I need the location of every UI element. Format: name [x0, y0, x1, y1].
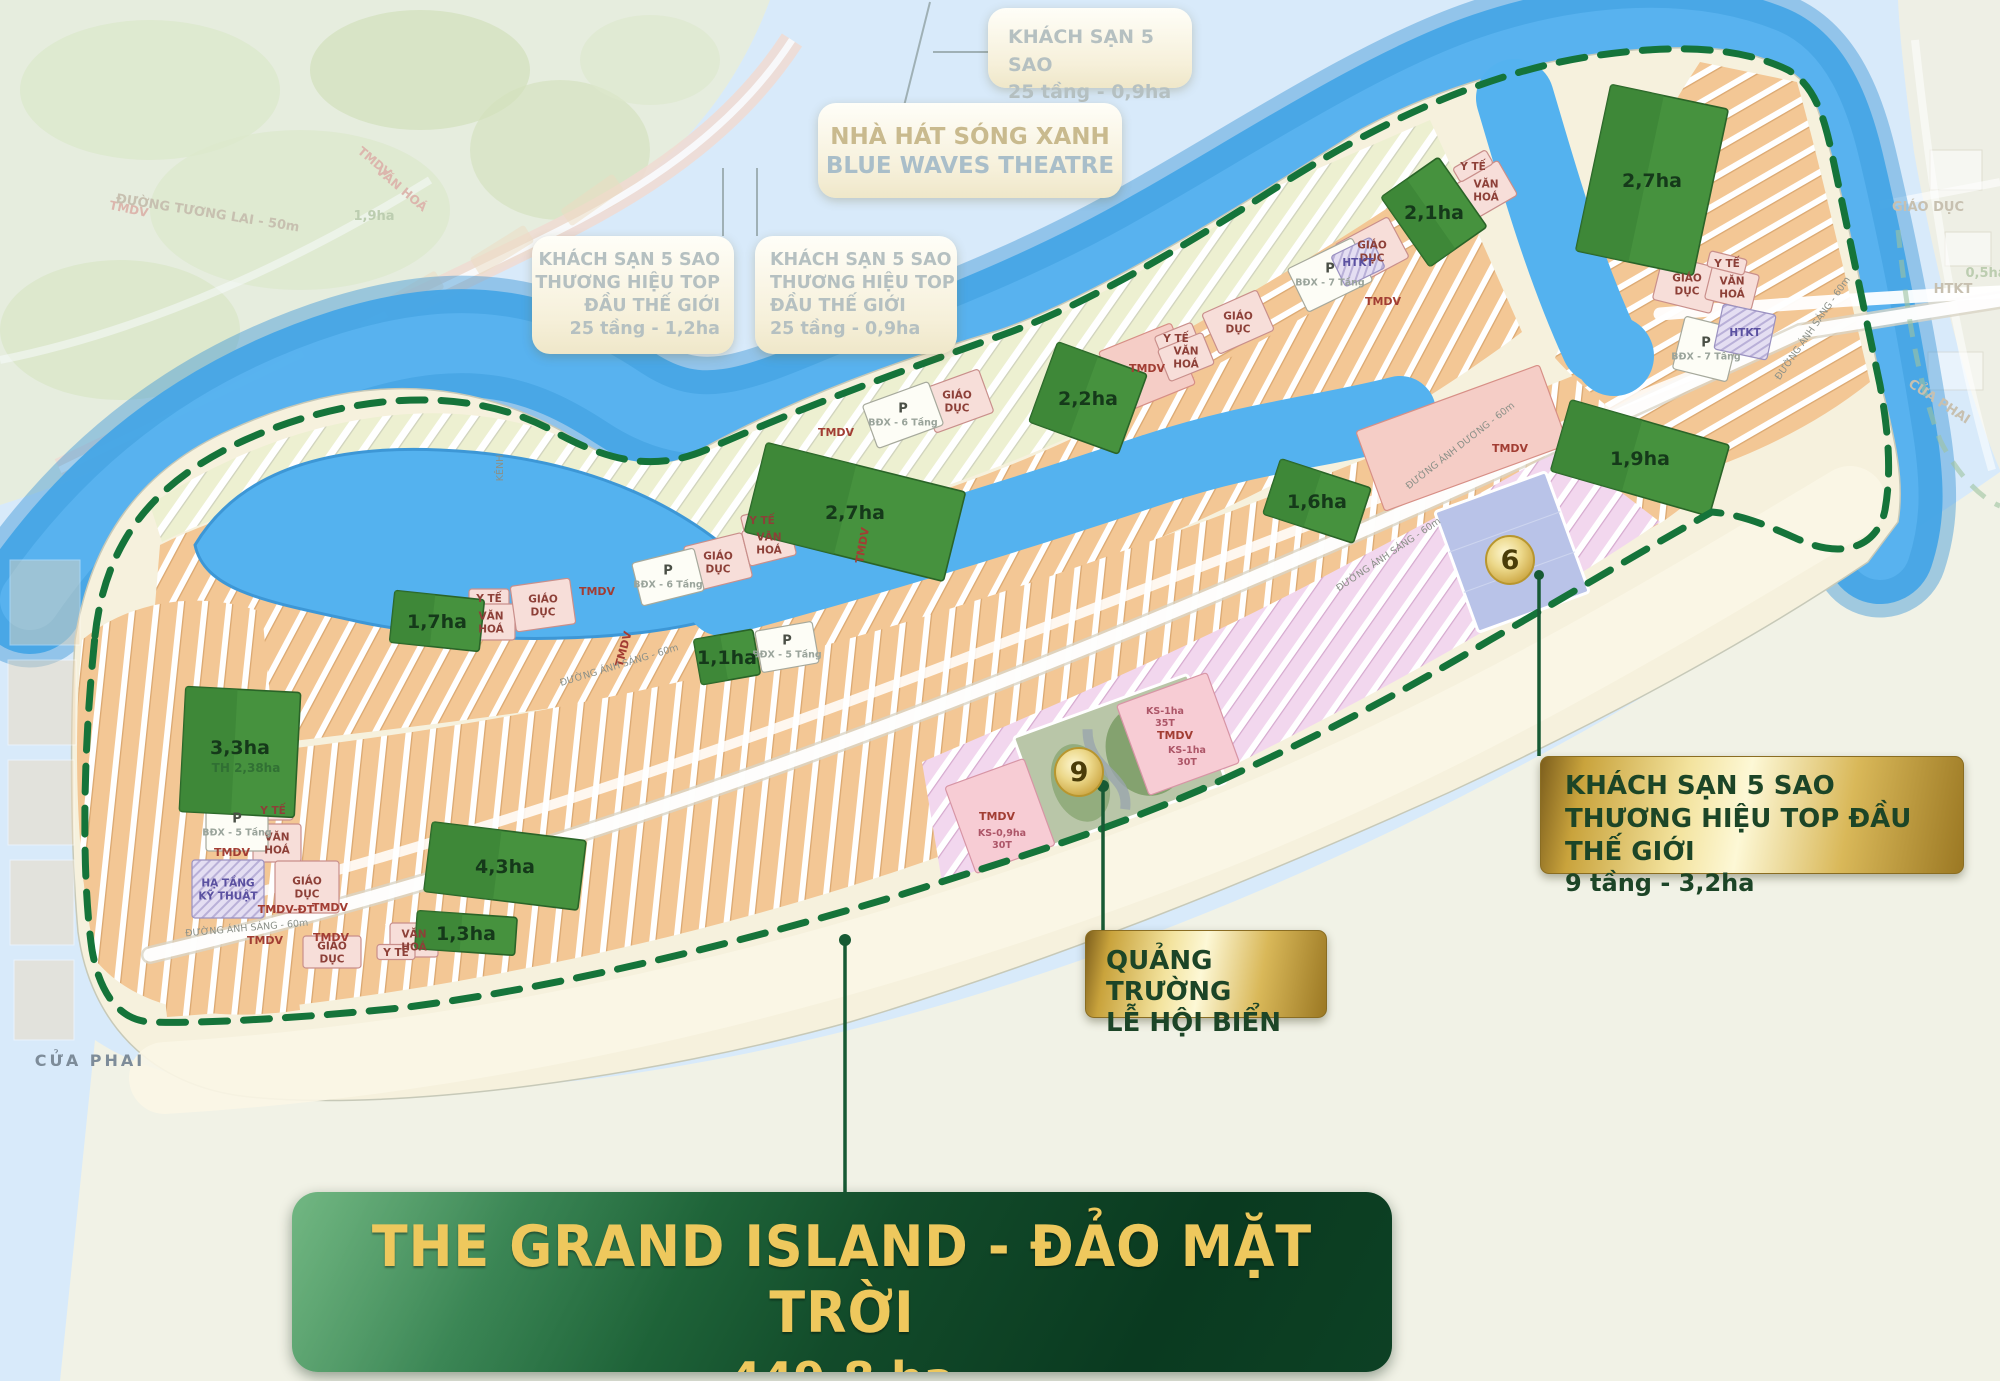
zone-label: TMDV	[1157, 729, 1194, 742]
zone-label: KÊNH	[494, 455, 506, 481]
masterplan-stage: 69 Y TẾVĂNHOÁGIÁODỤCY TẾVĂNHOÁGIÁODỤCGIÁ…	[0, 0, 2000, 1381]
park-area-label: 2,1ha	[1404, 202, 1464, 224]
callout-line: KHÁCH SẠN 5 SAO	[770, 249, 957, 272]
block-label: GIÁO	[703, 550, 733, 563]
park-area-label: 1,3ha	[436, 923, 496, 945]
callout-line: KHÁCH SẠN 5 SAO	[532, 249, 720, 272]
zone-label: TMDV	[1365, 295, 1402, 308]
block-label: DỤC	[320, 954, 345, 966]
block-label: VĂN	[1173, 345, 1198, 358]
zone-label: TMDV	[214, 846, 251, 859]
block-label: DỤC	[1675, 286, 1700, 298]
zone-label: 35T	[1155, 718, 1175, 729]
park-area-label: 2,2ha	[1058, 388, 1118, 410]
block-label: GIÁO	[1672, 272, 1702, 285]
zone-label: KS-0,9ha	[978, 828, 1026, 839]
block-label: P	[1701, 336, 1711, 351]
callout-line: KHÁCH SẠN 5 SAO	[1565, 770, 1963, 803]
block-label: DỤC	[1226, 324, 1251, 336]
block-label: DỤC	[945, 403, 970, 415]
block-label: HOÁ	[1473, 191, 1499, 204]
block-label: BĐX - 6 Tầng	[868, 418, 937, 429]
callout-line: ĐẦU THẾ GIỚI	[532, 295, 720, 318]
block-label: P	[782, 634, 792, 649]
block-label: Y TẾ	[475, 590, 502, 605]
block-label: VĂN	[478, 610, 503, 623]
block-label: KỸ THUẬT	[198, 890, 258, 903]
callout-theatre: NHÀ HÁT SÓNG XANH BLUE WAVES THEATRE	[818, 103, 1122, 198]
block-label: HOÁ	[756, 544, 782, 557]
park-area-label: 4,3ha	[475, 856, 535, 878]
zone-label: TMDV	[1492, 442, 1529, 455]
park-area-label: 1,9ha	[1610, 448, 1670, 470]
block-label: P	[232, 812, 242, 827]
zone-label: 0,5ha	[1965, 266, 2000, 281]
zone-label: TMDV	[579, 585, 616, 598]
block-label: GIÁO	[1357, 239, 1387, 252]
block-label: P	[1325, 262, 1335, 277]
block-label: HTKT	[1342, 257, 1374, 269]
block-label: P	[663, 564, 673, 579]
callout-hotel-left: KHÁCH SẠN 5 SAO THƯƠNG HIỆU TOP ĐẦU THẾ …	[532, 236, 734, 354]
callout-festival-square: QUẢNG TRƯỜNG LỄ HỘI BIỂN	[1085, 930, 1327, 1018]
park-area-label: 1,6ha	[1287, 491, 1347, 513]
block-label: VĂN	[1473, 178, 1498, 191]
callout-line: KHÁCH SẠN 5 SAO	[1008, 24, 1192, 79]
callout-line: LỄ HỘI BIỂN	[1106, 1008, 1326, 1039]
block-label: BĐX - 6 Tầng	[633, 580, 702, 591]
project-title: THE GRAND ISLAND - ĐẢO MẶT TRỜI	[336, 1214, 1348, 1346]
project-area: 449,8 ha	[292, 1352, 1392, 1372]
block-label: VĂN	[1719, 275, 1744, 288]
zone-label: CỬA PHAI	[35, 1049, 146, 1070]
zone-label: GIÁO DỤC	[1892, 199, 1964, 215]
zone-label: KS-1ha	[1146, 706, 1184, 717]
zone-label: TMDV	[313, 931, 350, 944]
block-label: GIÁO	[528, 593, 558, 606]
block-label: HTKT	[1729, 327, 1761, 339]
block-label: GIÁO	[942, 389, 972, 402]
west-ghost-strips	[8, 560, 80, 1040]
block-label: Y TẾ	[1713, 255, 1740, 270]
project-title-banner: THE GRAND ISLAND - ĐẢO MẶT TRỜI 449,8 ha	[292, 1192, 1392, 1372]
zone-label: 30T	[992, 840, 1012, 851]
masterplan-map: 69 Y TẾVĂNHOÁGIÁODỤCY TẾVĂNHOÁGIÁODỤCGIÁ…	[0, 0, 2000, 1381]
theatre-name-vi: NHÀ HÁT SÓNG XANH	[818, 123, 1122, 152]
block-label: DỤC	[295, 889, 320, 901]
park-area-label: 2,7ha	[825, 502, 885, 524]
zone-label: TMDV	[312, 901, 349, 914]
block-label: GIÁO	[1223, 310, 1253, 323]
zone-label: KS-1ha	[1168, 745, 1206, 756]
block-label: P	[898, 402, 908, 417]
callout-line: ĐẦU THẾ GIỚI	[770, 295, 957, 318]
callout-line: 25 tầng - 0,9ha	[770, 318, 957, 341]
zone-label: TMDV	[818, 426, 855, 439]
block-label: DỤC	[531, 607, 556, 619]
park-area-label: 1,7ha	[407, 611, 467, 633]
callout-hotel-center: KHÁCH SẠN 5 SAO THƯƠNG HIỆU TOP ĐẦU THẾ …	[755, 236, 957, 354]
block-label: GIÁO	[292, 875, 322, 888]
marker-number: 9	[1070, 757, 1089, 788]
theatre-name-en: BLUE WAVES THEATRE	[818, 152, 1122, 181]
callout-hotel-right-gold: KHÁCH SẠN 5 SAO THƯƠNG HIỆU TOP ĐẦU THẾ …	[1540, 756, 1964, 874]
block-label: BĐX - 7 Tầng	[1295, 278, 1364, 289]
callout-line: QUẢNG TRƯỜNG	[1106, 946, 1326, 1008]
block-label: BĐX - 7 Tầng	[1671, 352, 1740, 363]
numbered-marker[interactable]: 6	[1486, 536, 1534, 584]
callout-line: 25 tầng - 1,2ha	[532, 318, 720, 341]
block-label: Y TẾ	[1162, 330, 1189, 345]
park-area-label: 2,7ha	[1622, 170, 1682, 192]
marker-number: 6	[1501, 545, 1520, 576]
park-area-label: 3,3ha	[210, 737, 270, 759]
zone-label: 30T	[1177, 757, 1197, 768]
park-area-label: 1,1ha	[697, 647, 757, 669]
callout-hotel-top: KHÁCH SẠN 5 SAO 25 tầng - 0,9ha	[988, 8, 1192, 88]
callout-line: THƯƠNG HIỆU TOP	[770, 272, 957, 295]
zone-label: HTKT	[1934, 282, 1973, 297]
block-label: Y TẾ	[748, 512, 775, 527]
zone-label: TMDV	[979, 810, 1016, 823]
block-label: Y TẾ	[382, 944, 409, 959]
zone-label: 1,9ha	[353, 209, 394, 224]
block-label: Y TẾ	[259, 802, 286, 817]
block-label: BĐX - 5 Tầng	[202, 828, 271, 839]
block-label: DỤC	[706, 564, 731, 576]
block-label: HOÁ	[1173, 358, 1199, 371]
block-label: HOÁ	[478, 623, 504, 636]
block-label: HOÁ	[264, 844, 290, 857]
callout-line: THƯƠNG HIỆU TOP	[532, 272, 720, 295]
block-label: BĐX - 5 Tầng	[752, 650, 821, 661]
block-label: HOÁ	[1719, 288, 1745, 301]
block-label: VĂN	[756, 531, 781, 544]
block-label: Y TẾ	[1459, 158, 1486, 173]
zone-label: TMDV	[247, 934, 284, 947]
block-label: VĂN	[401, 928, 426, 941]
block-label: TMDV	[1129, 362, 1166, 375]
block-label: HẠ TẦNG	[201, 876, 254, 890]
zone-label: TMDV-ĐT	[258, 903, 315, 916]
callout-line: THƯƠNG HIỆU TOP ĐẦU THẾ GIỚI	[1565, 803, 1963, 869]
callout-line: 9 tầng - 3,2ha	[1565, 868, 1963, 898]
park-sub-label: TH 2,38ha	[212, 761, 281, 775]
numbered-marker[interactable]: 9	[1055, 748, 1103, 796]
